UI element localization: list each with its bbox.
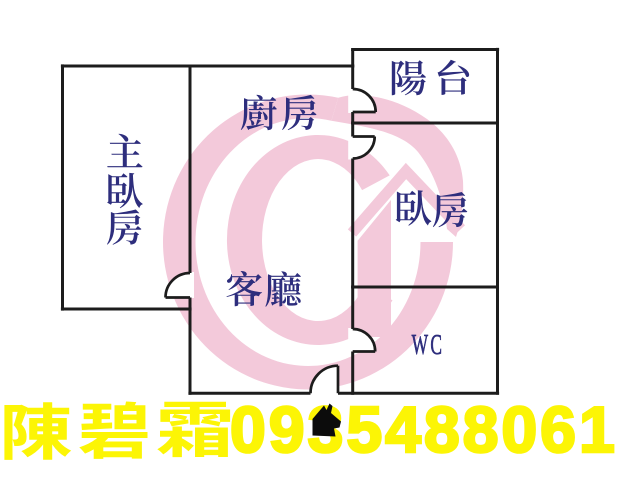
svg-text:WC: WC [412,330,445,362]
svg-text:0935488061: 0935488061 [230,394,618,466]
